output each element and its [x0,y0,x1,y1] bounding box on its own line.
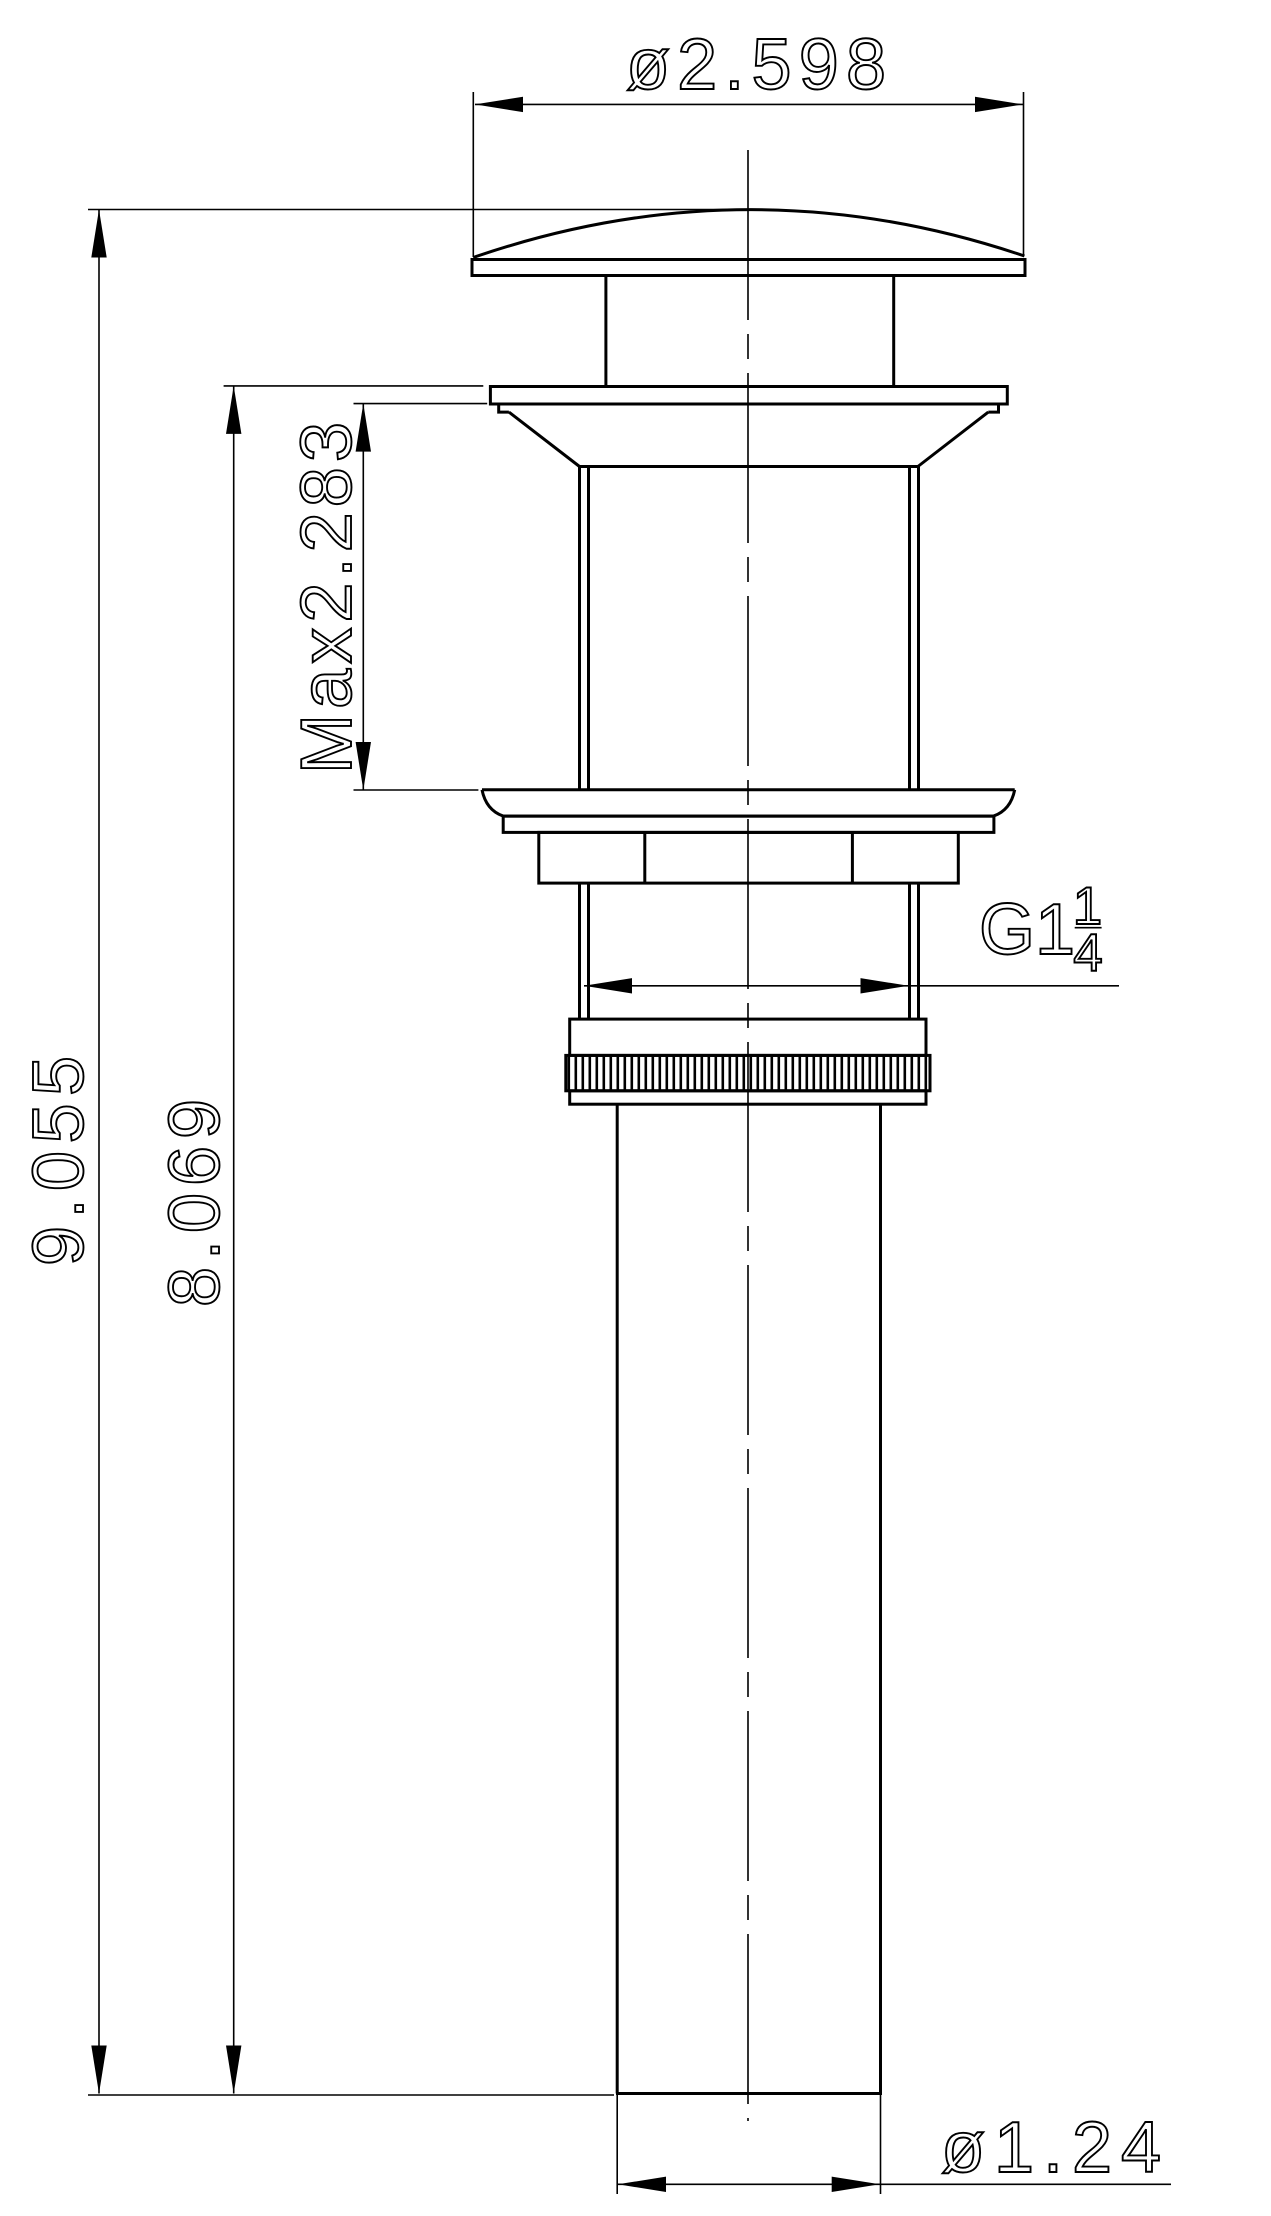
svg-text:ø1.24: ø1.24 [941,2108,1161,2188]
svg-text:9.055: 9.055 [19,1056,99,1266]
svg-text:Max2.283: Max2.283 [287,422,367,774]
svg-text:ø2.598: ø2.598 [626,25,886,105]
svg-text:4: 4 [1073,924,1102,983]
svg-text:G1: G1 [979,890,1075,970]
svg-text:8.069: 8.069 [155,1099,235,1307]
